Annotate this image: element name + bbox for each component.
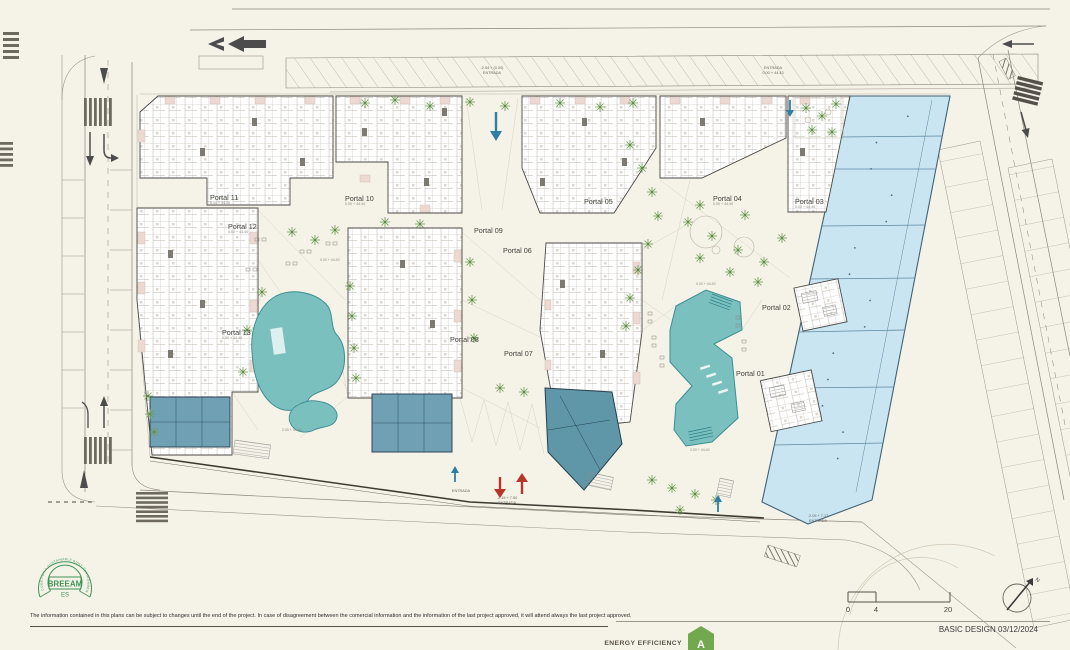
site-plan-drawing: CODE FOR A SUSTAINABLE BUILT ENVIRONMENT… [0,0,1070,650]
top-parking-strip [286,54,1038,88]
scale-20: 20 [944,605,952,614]
portal-10-label: Portal 100.00 + 44.40 [345,195,374,206]
road-bay-lines [62,170,132,450]
portal-04-label: Portal 040.00 + 44.40 [713,195,742,206]
scale-bar: 0 4 20 [846,592,952,614]
titleblock-rule [616,621,1050,622]
svg-text:CODE FOR A SUSTAINABLE BUILT E: CODE FOR A SUSTAINABLE BUILT ENVIRONMENT [0,0,91,593]
portal-03-label: Portal 030.00 + 44.40 [795,198,824,209]
slate-buildings [150,388,734,498]
pool-west [252,292,345,411]
pools [252,290,742,446]
energy-rating: A [697,639,705,650]
site-plan-canvas: CODE FOR A SUSTAINABLE BUILT ENVIRONMENT… [0,0,1070,650]
down-arrow-icon [100,68,108,84]
energy-efficiency-label: ENERGY EFFICIENCY [556,640,682,647]
portal-01-core [760,370,822,432]
spot-elevation: 0.00 + 44.40 [282,428,302,432]
spot-elevation: 0.00 + 44.40 [320,258,340,262]
breeam-logo: CODE FOR A SUSTAINABLE BUILT ENVIRONMENT… [0,0,91,599]
buildings [137,96,850,455]
spot-elevation: 0.00 + 44.40 [690,448,710,452]
spot-elevation: 0.00 + 44.40 [696,282,716,286]
entrance-label-bottom-left: ENTRADA [452,489,470,494]
portal-08-label: Portal 08 [450,336,479,344]
portal-13-label: Portal 130.00 + 44.40 [222,329,251,340]
footer-disclaimer: The information contained in this plans … [30,613,631,619]
portal-07-label: Portal 07 [504,350,533,358]
building-portal-09-08 [348,228,462,398]
entry-arrow-top-icon [490,131,502,141]
left-lane-arrow-icon [228,36,266,52]
building-portal-11 [140,96,333,205]
entrance-label-bottom-right: -2.05 + 7.17ENTRADA [808,514,828,524]
portal-05-label: Portal 05 [584,198,613,206]
basic-design-date: BASIC DESIGN 03/12/2024 [876,625,1038,634]
entrance-label-bottom: -2.15 + 7.50ENTRADA [497,496,517,506]
entrance-label-top-right: ENTRADA0.00 + 44.43 [762,66,783,76]
portal-09-label: Portal 09 [474,227,503,235]
scale-0: 0 [846,605,850,614]
portal-12-label: Portal 120.00 + 44.40 [228,223,257,234]
portal-06-label: Portal 06 [503,247,532,255]
disclaimer-underline [30,626,608,627]
building-portal-05 [522,96,656,213]
portal-11-label: Portal 110.00 + 44.40 [210,194,238,205]
entrance-label-top: -2.54 + (0.00)ENTRADA [481,66,504,76]
breeam-ring-text: CODE FOR A SUSTAINABLE BUILT ENVIRONMENT [0,0,91,593]
portal-02-core [794,279,847,331]
breeam-name: BREEAM [48,580,83,589]
energy-badge: A [688,626,714,650]
breeam-region: ES [61,593,69,599]
building-portal-04 [660,96,786,178]
portal-02-label: Portal 02 [762,304,791,312]
scale-4: 4 [874,605,878,614]
portal-01-label: Portal 01 [736,370,765,378]
